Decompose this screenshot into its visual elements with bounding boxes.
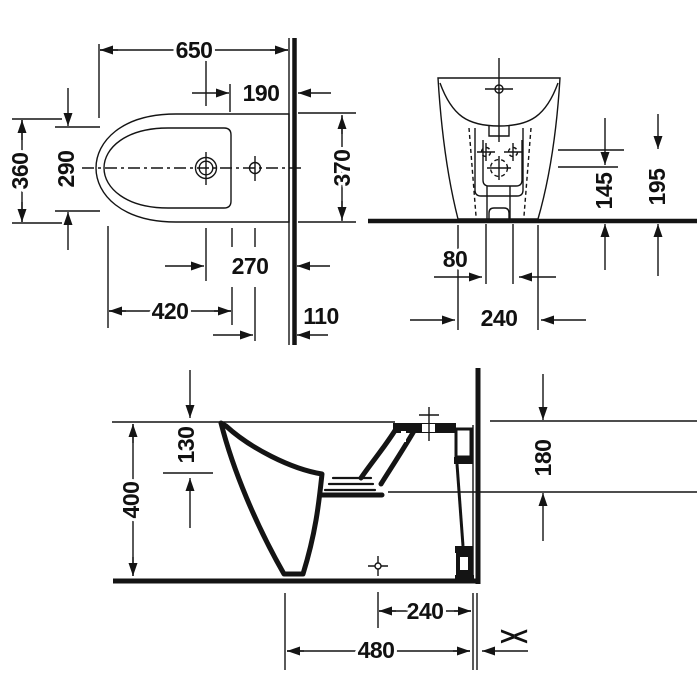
dim-side-rim-depth: 130 [173,427,199,464]
dim-side-height: 400 [118,482,144,519]
front-view: 145 195 80 240 [368,58,697,331]
dim-front-base-width: 240 [481,305,518,331]
dim-plan-outer-depth: 360 [7,153,33,190]
finished-wall-symbol: >< [500,621,528,651]
dim-plan-inner-depth: 290 [53,151,79,188]
drain-hole-front [487,156,511,180]
plan-view: 650 190 360 290 370 270 420 110 [7,37,356,345]
bidet-technical-drawing: 650 190 360 290 370 270 420 110 [0,0,700,700]
dim-plan-bowl-length: 420 [152,298,189,324]
dim-plan-rim-to-wall: 190 [243,80,280,106]
outlet-center-mark [368,556,388,576]
drain-hole-plan [196,60,217,185]
side-view: 130 400 180 240 480 >< [112,368,697,670]
wall-line-plan [289,38,295,345]
front-dimension-lines [410,114,658,320]
dim-plan-drain-to-wall: 270 [232,253,269,279]
dim-plan-tap-to-wall: 110 [303,303,339,329]
dim-side-outlet-drop: 180 [530,440,556,477]
drain-steps [320,478,382,495]
dim-front-fixing-height: 145 [591,172,617,210]
plan-extension-lines [12,44,356,341]
dim-side-total-depth: 480 [358,637,395,663]
finished-wall-lines [473,593,477,670]
dim-plan-side-clearance: 370 [329,150,355,187]
side-dimension-lines [133,370,543,651]
dim-front-hole-spacing: 80 [443,246,468,272]
dim-plan-width: 650 [176,37,213,63]
bidet-front-outline [438,58,560,219]
bidet-side-section [221,407,474,580]
dim-front-rim-height: 195 [644,168,670,206]
dim-side-base-depth: 240 [407,598,444,624]
